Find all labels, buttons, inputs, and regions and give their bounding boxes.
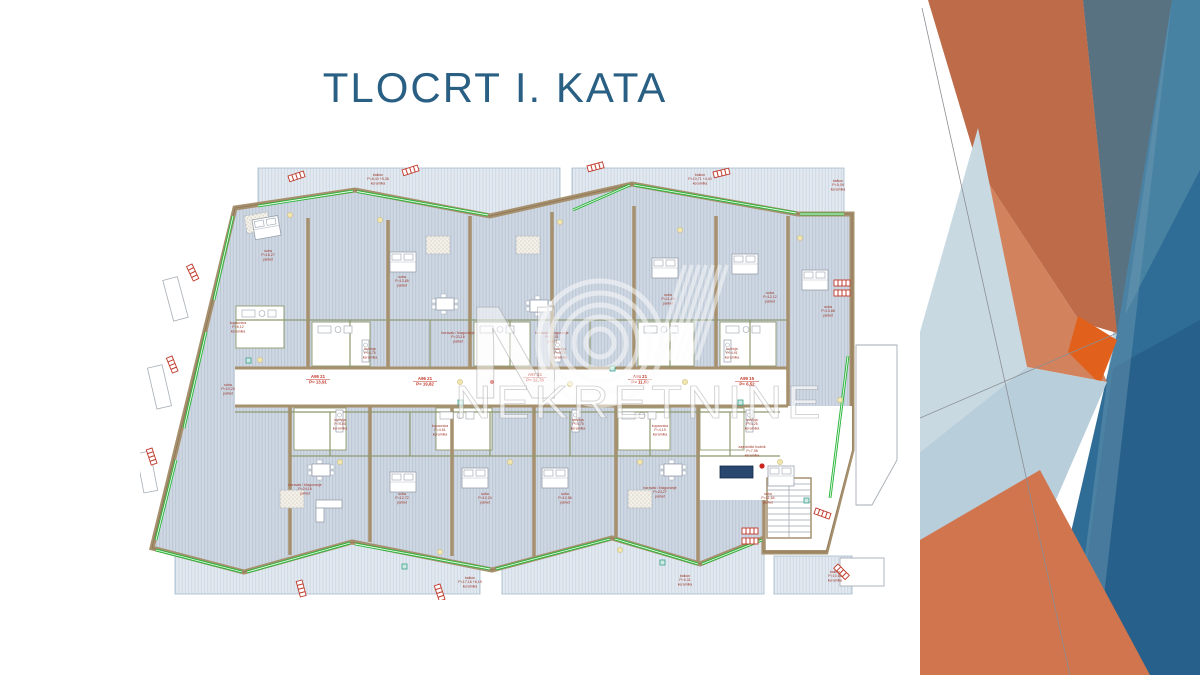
room-label: balkonP=5,09keramika bbox=[831, 179, 846, 191]
decoration-shapes bbox=[920, 0, 1200, 675]
corner-decoration bbox=[920, 0, 1200, 675]
room-label: kupaonicaP=4,61keramika bbox=[432, 424, 448, 436]
red-marker-dot bbox=[759, 463, 764, 468]
room-label: kuhinjaP=4,91keramika bbox=[725, 347, 740, 359]
elevator bbox=[720, 466, 753, 478]
unit-label: A98 21P= 11,90 bbox=[631, 374, 649, 384]
slide-title: TLOCRT I. KATA bbox=[140, 64, 850, 112]
room-label: kuhinjaP=4,75keramika bbox=[571, 418, 586, 430]
room-label: kuhinjaP=4,75keramika bbox=[363, 347, 378, 359]
room-label: balkonP=10,65keramika bbox=[828, 570, 843, 582]
room-label: kupaonicaP=4,19keramika bbox=[652, 424, 668, 436]
room-label: kuhinjaP=4,80keramika bbox=[333, 418, 348, 430]
red-marker-dot bbox=[490, 380, 494, 384]
unit-label: A97 21P= 12,76 bbox=[526, 372, 544, 382]
stairs bbox=[767, 478, 811, 538]
room-label: kuhinjaP=4,75keramika bbox=[553, 347, 568, 359]
unit-label: A96 21P= 19,82 bbox=[416, 376, 434, 386]
floor-plan: balkonP=8,43 +5,38keramikabalkonP=10,71 … bbox=[140, 160, 900, 600]
unit-label: A99 15P= 6,52 bbox=[739, 376, 755, 386]
room-label: kupaonicaP=5,12keramika bbox=[230, 321, 246, 333]
floor-plan-svg: balkonP=8,43 +5,38keramikabalkonP=10,71 … bbox=[140, 160, 900, 600]
slide: TLOCRT I. KATA bbox=[0, 0, 1200, 675]
unit-label: A95 21P= 13,91 bbox=[309, 374, 327, 384]
room-label: kuhinjaP=4,25keramika bbox=[745, 418, 760, 430]
room-label: balkonP=9,31keramika bbox=[678, 574, 693, 586]
